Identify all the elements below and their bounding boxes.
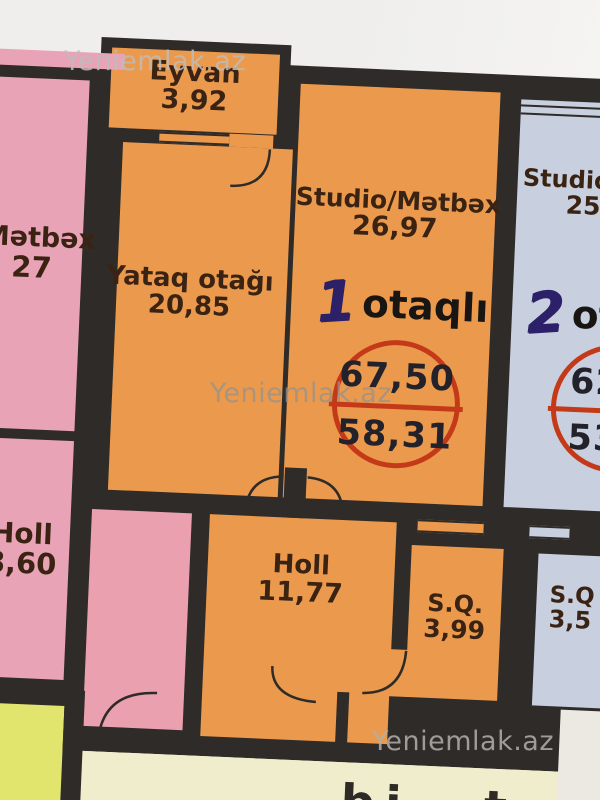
sq-door-arc bbox=[362, 649, 406, 695]
holl-door-arc bbox=[271, 666, 317, 702]
double-door-arc-right bbox=[306, 477, 345, 519]
double-door-wall-stub bbox=[283, 467, 307, 518]
watermark-top: Yeniemlak.az bbox=[64, 46, 246, 77]
balcony-door-arc bbox=[230, 148, 270, 188]
watermark-bottom: Yeniemlak.az bbox=[372, 726, 554, 757]
pink-room-door-arc bbox=[98, 691, 157, 743]
floorplan-photo: Eyvan 3,92 Mətbəx 27 Holl 8,60 Yataq ota… bbox=[0, 0, 600, 800]
watermark-middle: Yeniemlak.az bbox=[210, 378, 392, 409]
double-door-arc-left bbox=[245, 475, 284, 517]
